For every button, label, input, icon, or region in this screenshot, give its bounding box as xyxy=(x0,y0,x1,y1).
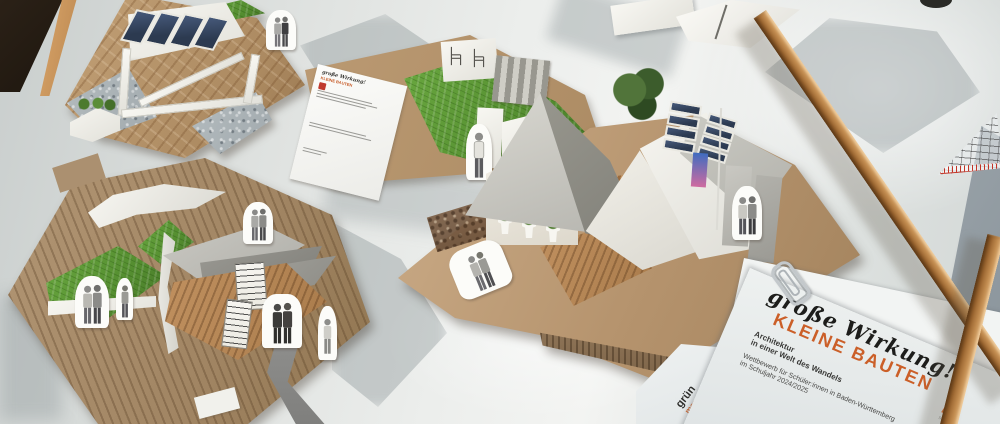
model-3-poster xyxy=(691,153,708,188)
two-people-silhouette-icon xyxy=(734,194,760,240)
model-1-plants xyxy=(76,96,116,112)
two-people-silhouette-icon xyxy=(266,302,298,348)
model-4-people-print xyxy=(262,294,302,348)
model-4-people-cutout xyxy=(75,276,109,328)
model-4-person-cutout xyxy=(318,306,337,360)
card-fold-line xyxy=(714,5,727,40)
model-4-person-cutout xyxy=(116,278,133,320)
model-3-people-cutout xyxy=(732,186,762,240)
photo-architectural-models-scene: große Wirkung! KLEINE BAUTEN xyxy=(0,0,1000,424)
letter-red-stamp xyxy=(318,82,326,90)
person-silhouette-icon xyxy=(321,314,334,360)
person-silhouette-icon xyxy=(119,284,131,320)
two-people-silhouette-icon xyxy=(78,284,106,328)
two-people-silhouette-icon xyxy=(268,16,294,50)
model-1-people-cutout xyxy=(266,10,296,50)
model-3-tree xyxy=(608,62,670,124)
letter-text-line xyxy=(317,93,378,109)
letter-text-line xyxy=(310,122,366,137)
two-people-silhouette-icon xyxy=(246,208,271,244)
chair-icon xyxy=(448,45,464,67)
letter-text-line xyxy=(309,125,371,141)
chair-icon xyxy=(471,47,487,69)
model-4-people-cutout xyxy=(243,202,273,244)
